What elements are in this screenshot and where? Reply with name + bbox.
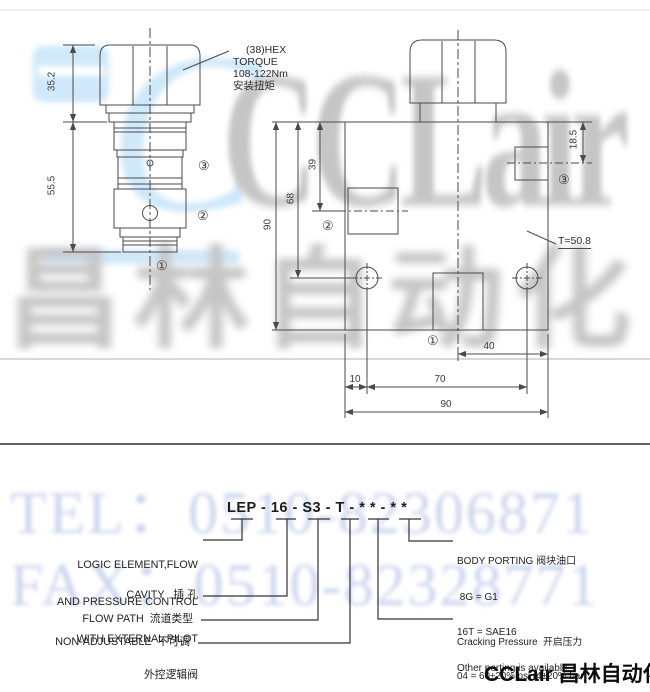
dim-55-5: 55.5 [47,172,58,200]
cracking-title: Cracking Pressure 开启压力 [457,637,600,648]
valve-port3-label: ③ [198,159,210,172]
dim-68: 68 [286,187,297,211]
hex-torque-note: (38)HEX TORQUE 108-122Nm 安装扭矩 [233,44,288,92]
thickness-label: T=50.8 [558,235,591,249]
dim-39: 39 [308,153,319,177]
block-port3-label: ③ [558,173,570,186]
dim-35-2: 35.2 [47,68,58,96]
flow-path-label: FLOW PATH 流道类型 [50,613,193,625]
block-port1-label: ① [427,334,439,347]
content-layer: (38)HEX TORQUE 108-122Nm 安装扭矩 35.2 55.5 … [0,0,650,692]
dim-40: 40 [477,341,501,352]
dim-90-vertical: 90 [263,213,274,237]
footer-brand: CCLair 昌林自动化 [484,658,650,688]
dim-18-5: 18.5 [569,124,580,156]
hex-note-line4: 安装扭矩 [233,80,288,92]
cavity-label: CAVITY 插 孔 [55,589,198,601]
block-port2-label: ② [322,219,334,232]
catalog-page: C CCLair 昌林自动化 TEL：0510-82306871 FAX：051… [0,0,650,692]
model-code: LEP - 16 - S3 - T - * * - * * [227,500,407,516]
valve-port2-label: ② [197,209,209,222]
dim-90-horizontal: 90 [433,399,459,410]
hex-note-line3: 108-122Nm [233,68,288,80]
hex-note-line1: (38)HEX [233,44,288,56]
valve-port1-label: ① [156,259,168,272]
body-porting-l1: 8G = G1 [457,592,577,604]
logic-line4: 外控逻辑阀 [55,669,198,681]
hex-note-line2: TORQUE [233,56,288,68]
dim-10: 10 [344,374,366,385]
non-adjustable-label: NON-ADJUSTABLE 不可调 [47,636,190,648]
dim-70: 70 [427,374,453,385]
logic-line1: LOGIC ELEMENT,FLOW [55,559,198,571]
body-porting-title: BODY PORTING 阀块油口 [457,556,577,568]
